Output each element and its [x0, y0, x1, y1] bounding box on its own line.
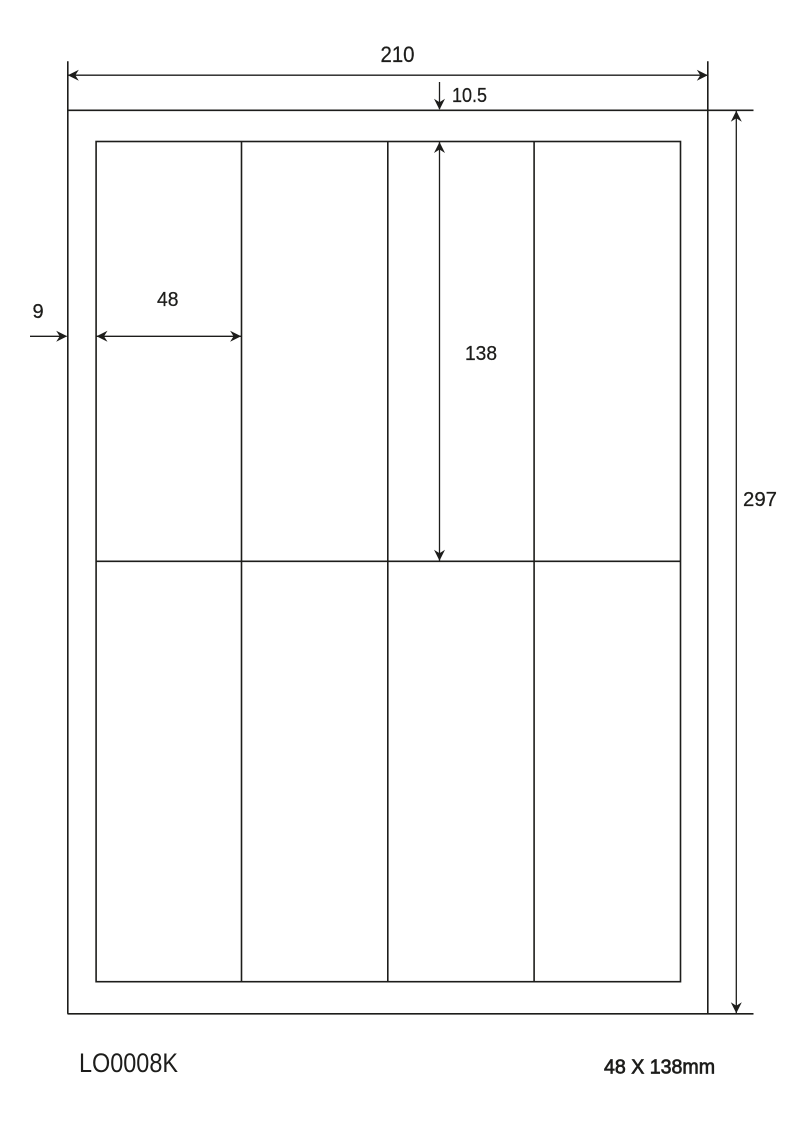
svg-text:48 X 138mm: 48 X 138mm: [604, 1057, 715, 1079]
svg-text:10.5: 10.5: [452, 85, 487, 107]
svg-text:138: 138: [465, 343, 497, 365]
svg-text:210: 210: [381, 42, 415, 67]
svg-text:297: 297: [743, 489, 777, 511]
svg-text:9: 9: [32, 301, 43, 323]
svg-text:LO0008K: LO0008K: [79, 1048, 178, 1078]
svg-text:48: 48: [157, 289, 178, 311]
